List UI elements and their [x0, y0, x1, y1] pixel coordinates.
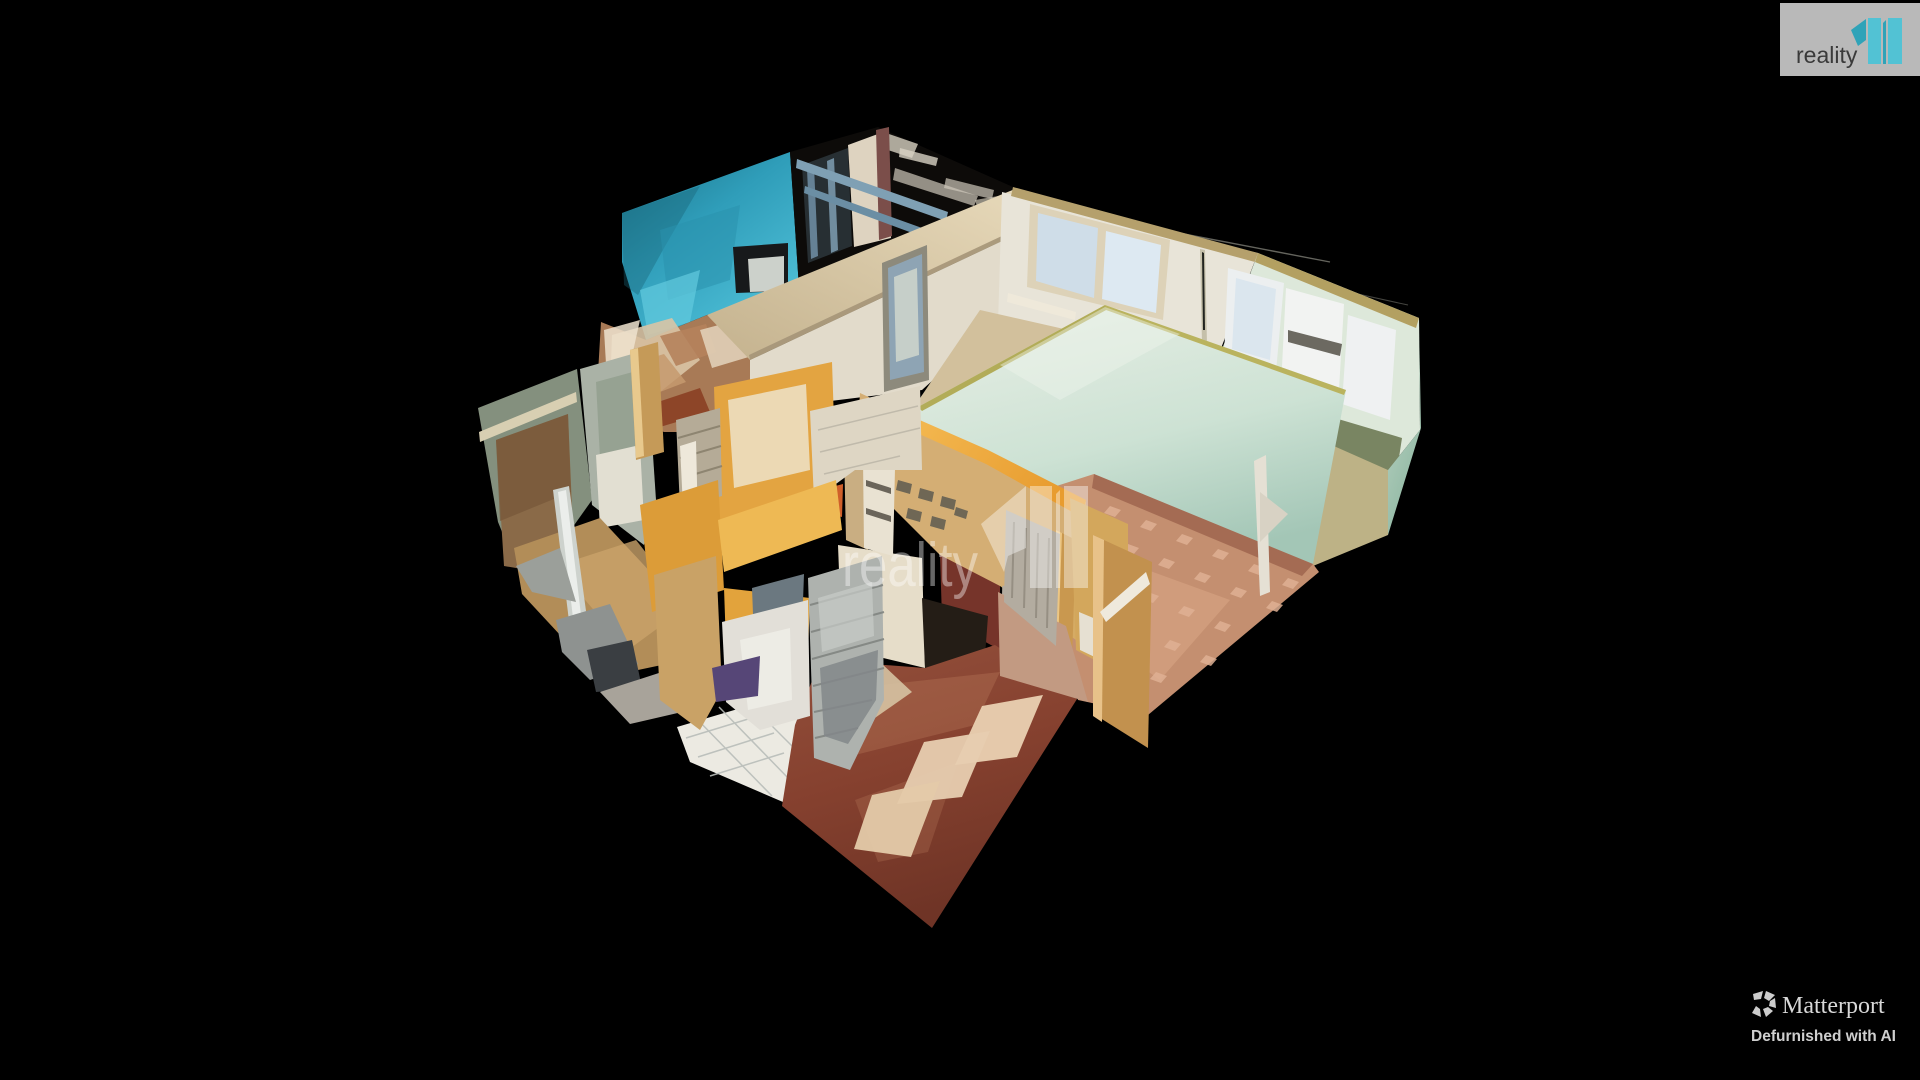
svg-text:Matterport: Matterport — [1782, 993, 1885, 1019]
svg-text:Defurnished with AI: Defurnished with AI — [1751, 1028, 1896, 1045]
svg-text:reality: reality — [1796, 42, 1858, 68]
svg-text:reality: reality — [842, 531, 978, 600]
